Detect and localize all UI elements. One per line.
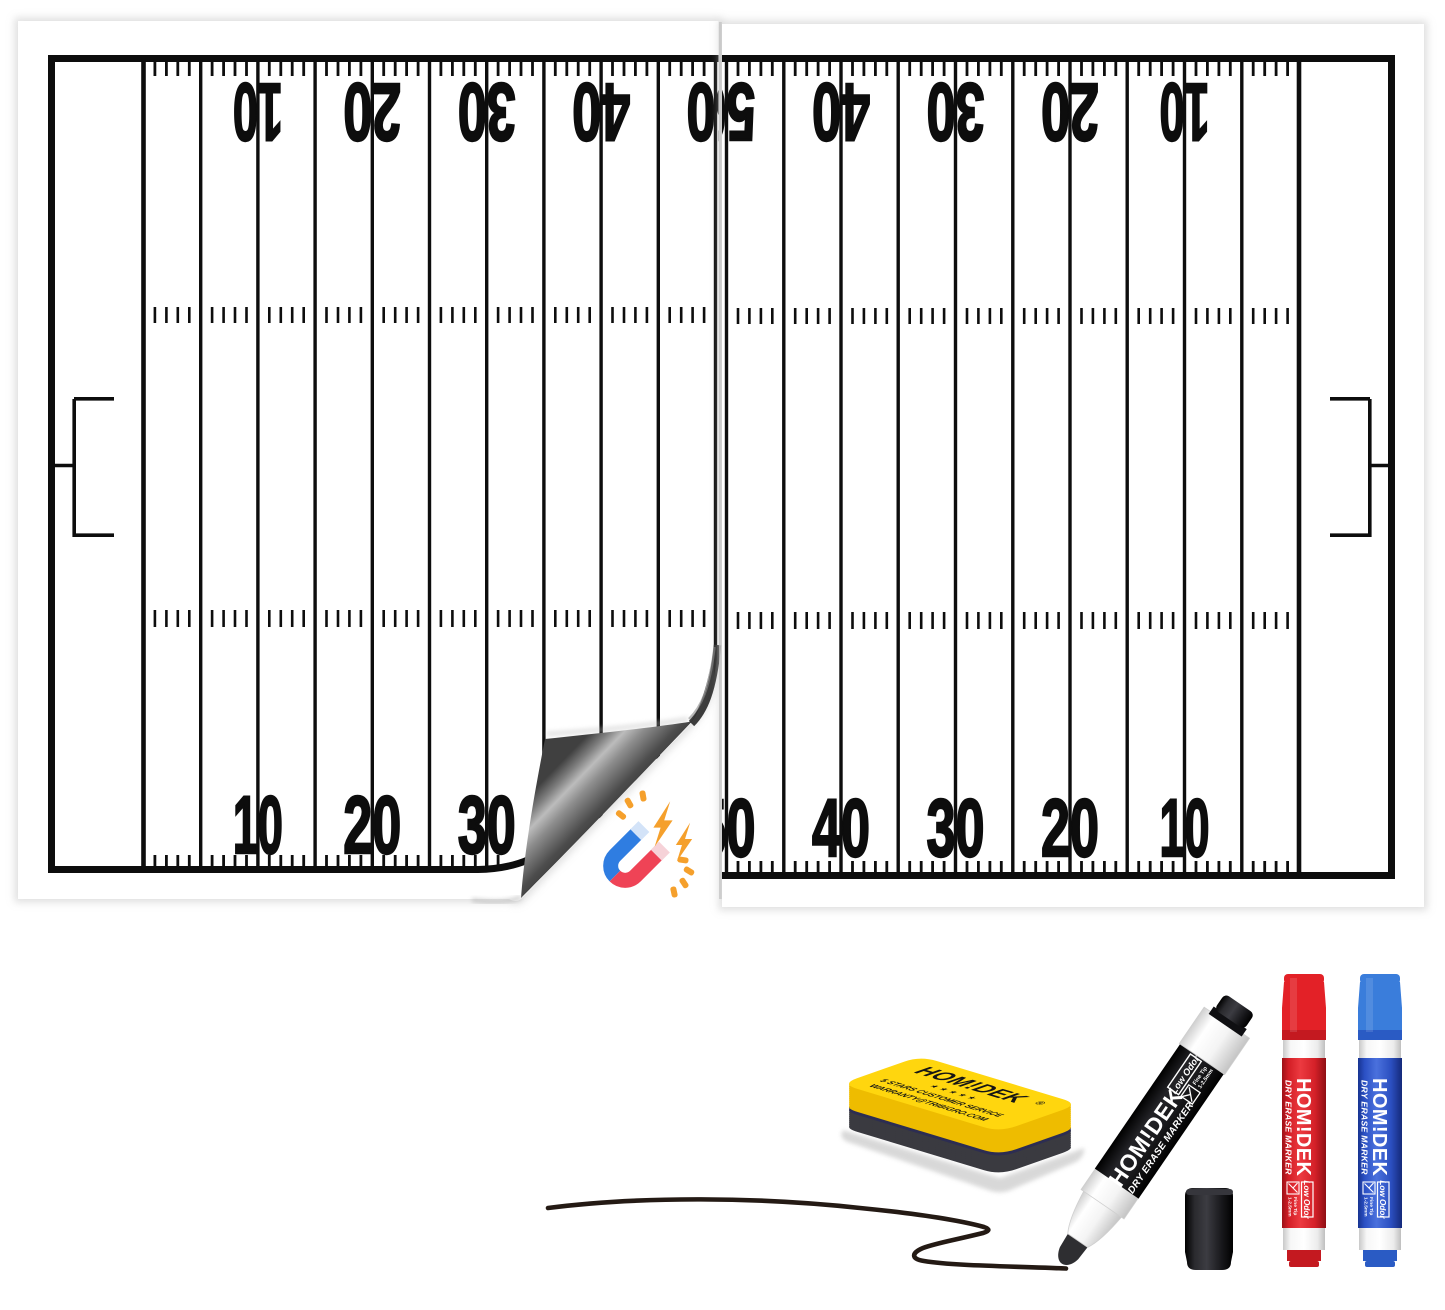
svg-text:20: 20	[1041, 783, 1099, 874]
svg-text:40: 40	[572, 66, 630, 157]
svg-text:40: 40	[812, 783, 870, 874]
svg-text:40: 40	[812, 66, 870, 157]
svg-text:30: 30	[927, 66, 985, 157]
svg-text:DRY ERASE MARKER: DRY ERASE MARKER	[1284, 1080, 1294, 1175]
svg-text:20: 20	[343, 780, 401, 871]
svg-text:HOM!DEK: HOM!DEK	[1292, 1078, 1314, 1177]
svg-text:20: 20	[1041, 66, 1099, 157]
svg-text:HOM!DEK: HOM!DEK	[1368, 1078, 1390, 1177]
svg-text:30: 30	[458, 780, 516, 871]
svg-text:10: 10	[233, 780, 283, 871]
svg-text:Low Odor: Low Odor	[1378, 1180, 1387, 1219]
svg-text:10: 10	[1160, 66, 1210, 157]
svg-text:10: 10	[233, 66, 283, 157]
svg-text:1-2.5mm: 1-2.5mm	[1363, 1197, 1369, 1216]
svg-text:30: 30	[458, 66, 516, 157]
svg-text:Low Odor: Low Odor	[1302, 1180, 1311, 1219]
svg-text:10: 10	[1160, 783, 1210, 874]
svg-text:20: 20	[343, 66, 401, 157]
svg-text:Fine Tip: Fine Tip	[1368, 1197, 1374, 1215]
svg-text:DRY ERASE MARKER: DRY ERASE MARKER	[1360, 1080, 1370, 1175]
svg-text:30: 30	[927, 783, 985, 874]
svg-text:Fine Tip: Fine Tip	[1292, 1197, 1298, 1215]
svg-text:1-2.5mm: 1-2.5mm	[1287, 1197, 1293, 1216]
